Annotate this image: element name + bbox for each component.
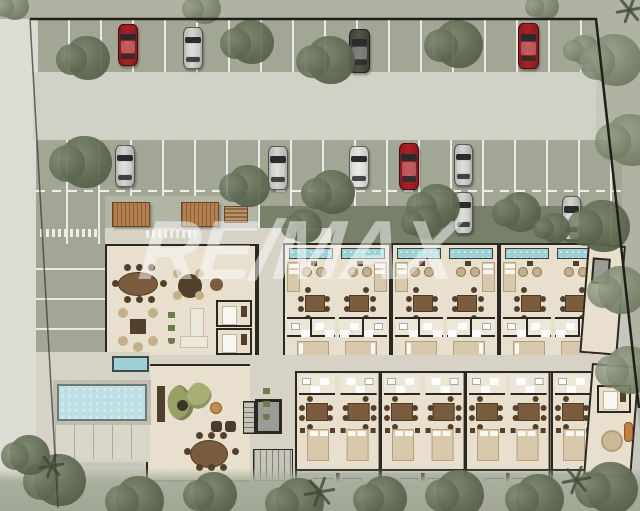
car-roof <box>118 162 132 174</box>
car-rear-window <box>121 54 135 59</box>
tree <box>230 20 274 64</box>
dining-table <box>457 295 477 312</box>
bathroom <box>425 375 461 395</box>
lounge-dining-table <box>190 440 228 468</box>
treatment-room <box>216 300 252 327</box>
bed <box>563 429 585 461</box>
tree <box>606 346 640 394</box>
car-roof <box>402 162 416 176</box>
accent-table <box>210 402 222 414</box>
bed <box>307 429 329 461</box>
apartment-unit-bottom <box>338 373 381 473</box>
tree <box>307 36 355 84</box>
ottoman <box>225 421 236 432</box>
dining-table <box>521 295 541 312</box>
dining-table <box>305 295 325 312</box>
bed <box>513 341 545 356</box>
car-windshield <box>456 154 470 160</box>
bathroom <box>447 317 495 337</box>
bed <box>431 429 453 461</box>
tree <box>586 462 638 511</box>
tree <box>60 136 112 188</box>
parked-car-red <box>118 24 138 66</box>
parked-car-silver <box>268 146 288 190</box>
bathroom <box>287 317 335 337</box>
curved-sofa <box>167 383 213 423</box>
apartment-unit-bottom <box>295 373 338 473</box>
plunge-pool <box>112 356 149 372</box>
parked-car-silver <box>454 144 473 186</box>
car-windshield <box>120 34 135 40</box>
bathroom <box>469 375 505 395</box>
planter-row <box>263 382 270 420</box>
car-windshield <box>270 156 285 163</box>
car-roof <box>352 163 366 175</box>
bed <box>453 341 485 356</box>
dining-table <box>518 403 540 421</box>
main-pool <box>57 384 147 421</box>
tree <box>228 165 270 207</box>
parked-car-silver <box>115 145 135 187</box>
bathroom <box>511 375 547 395</box>
car-rear-window <box>402 176 416 181</box>
bed <box>405 341 437 356</box>
apartment-unit-bottom <box>380 373 423 473</box>
apartment-unit-bottom <box>508 373 551 473</box>
car-rear-window <box>352 176 366 181</box>
site-plan-rendering: RE/MAX <box>0 0 640 511</box>
car-windshield <box>185 37 200 43</box>
dining-table <box>391 403 413 421</box>
terrace-table <box>573 261 579 266</box>
apartment-unit-bottom <box>423 373 466 473</box>
tree <box>66 36 110 80</box>
treatment-room <box>216 328 252 355</box>
car-rear-window <box>271 177 285 182</box>
reception-sofa <box>178 308 206 346</box>
driveway-lane <box>33 72 596 140</box>
bathroom <box>384 375 420 395</box>
tree <box>598 266 640 314</box>
pool-deck-pavers <box>55 425 150 459</box>
dining-table <box>413 295 433 312</box>
tree <box>193 472 237 511</box>
car-roof <box>271 164 285 177</box>
dining-table <box>562 403 584 421</box>
apartment-unit-bottom <box>465 373 508 473</box>
tree <box>540 213 570 243</box>
dining-table <box>347 403 369 421</box>
lounger <box>624 422 633 442</box>
coffee-table <box>177 400 188 411</box>
parked-car-red <box>399 143 419 190</box>
bed <box>477 429 499 461</box>
bathroom <box>339 317 387 337</box>
car-roof <box>521 42 535 55</box>
dining-table <box>432 403 454 421</box>
lobby-lounge-set <box>116 306 160 348</box>
car-rear-window <box>457 174 471 179</box>
tree <box>435 20 483 68</box>
bed <box>392 429 414 461</box>
terrace-chair <box>564 267 574 277</box>
dining-table <box>306 403 328 421</box>
bathroom <box>340 375 376 395</box>
bottom-unit-row <box>293 371 593 471</box>
tree <box>606 114 640 166</box>
dining-table <box>476 403 498 421</box>
car-windshield <box>352 39 368 46</box>
car-windshield <box>351 156 366 162</box>
stairs <box>243 401 255 434</box>
car-rear-window <box>521 56 536 61</box>
bed <box>517 429 539 461</box>
car-windshield <box>521 34 537 41</box>
bathroom <box>299 375 335 395</box>
planter-row <box>168 306 175 344</box>
car-rear-window <box>118 175 132 180</box>
parked-car-red <box>518 23 539 69</box>
car-rear-window <box>186 57 200 62</box>
bathroom <box>395 317 443 337</box>
round-rug <box>601 430 623 452</box>
tree <box>590 34 640 86</box>
ottoman <box>211 421 222 432</box>
console <box>157 386 165 422</box>
car-windshield <box>117 155 132 161</box>
parked-car-silver <box>183 27 203 69</box>
bed <box>297 341 329 356</box>
car-roof <box>121 41 135 53</box>
bed <box>346 429 368 461</box>
tree <box>578 200 630 252</box>
re-max-watermark: RE/MAX <box>136 208 545 292</box>
dining-table <box>349 295 369 312</box>
bed <box>345 341 377 356</box>
bathroom <box>555 375 591 395</box>
car-roof <box>186 44 200 56</box>
drain-grate <box>40 229 100 237</box>
car-roof <box>457 161 470 173</box>
car-windshield <box>401 154 416 161</box>
bathroom <box>503 317 551 337</box>
